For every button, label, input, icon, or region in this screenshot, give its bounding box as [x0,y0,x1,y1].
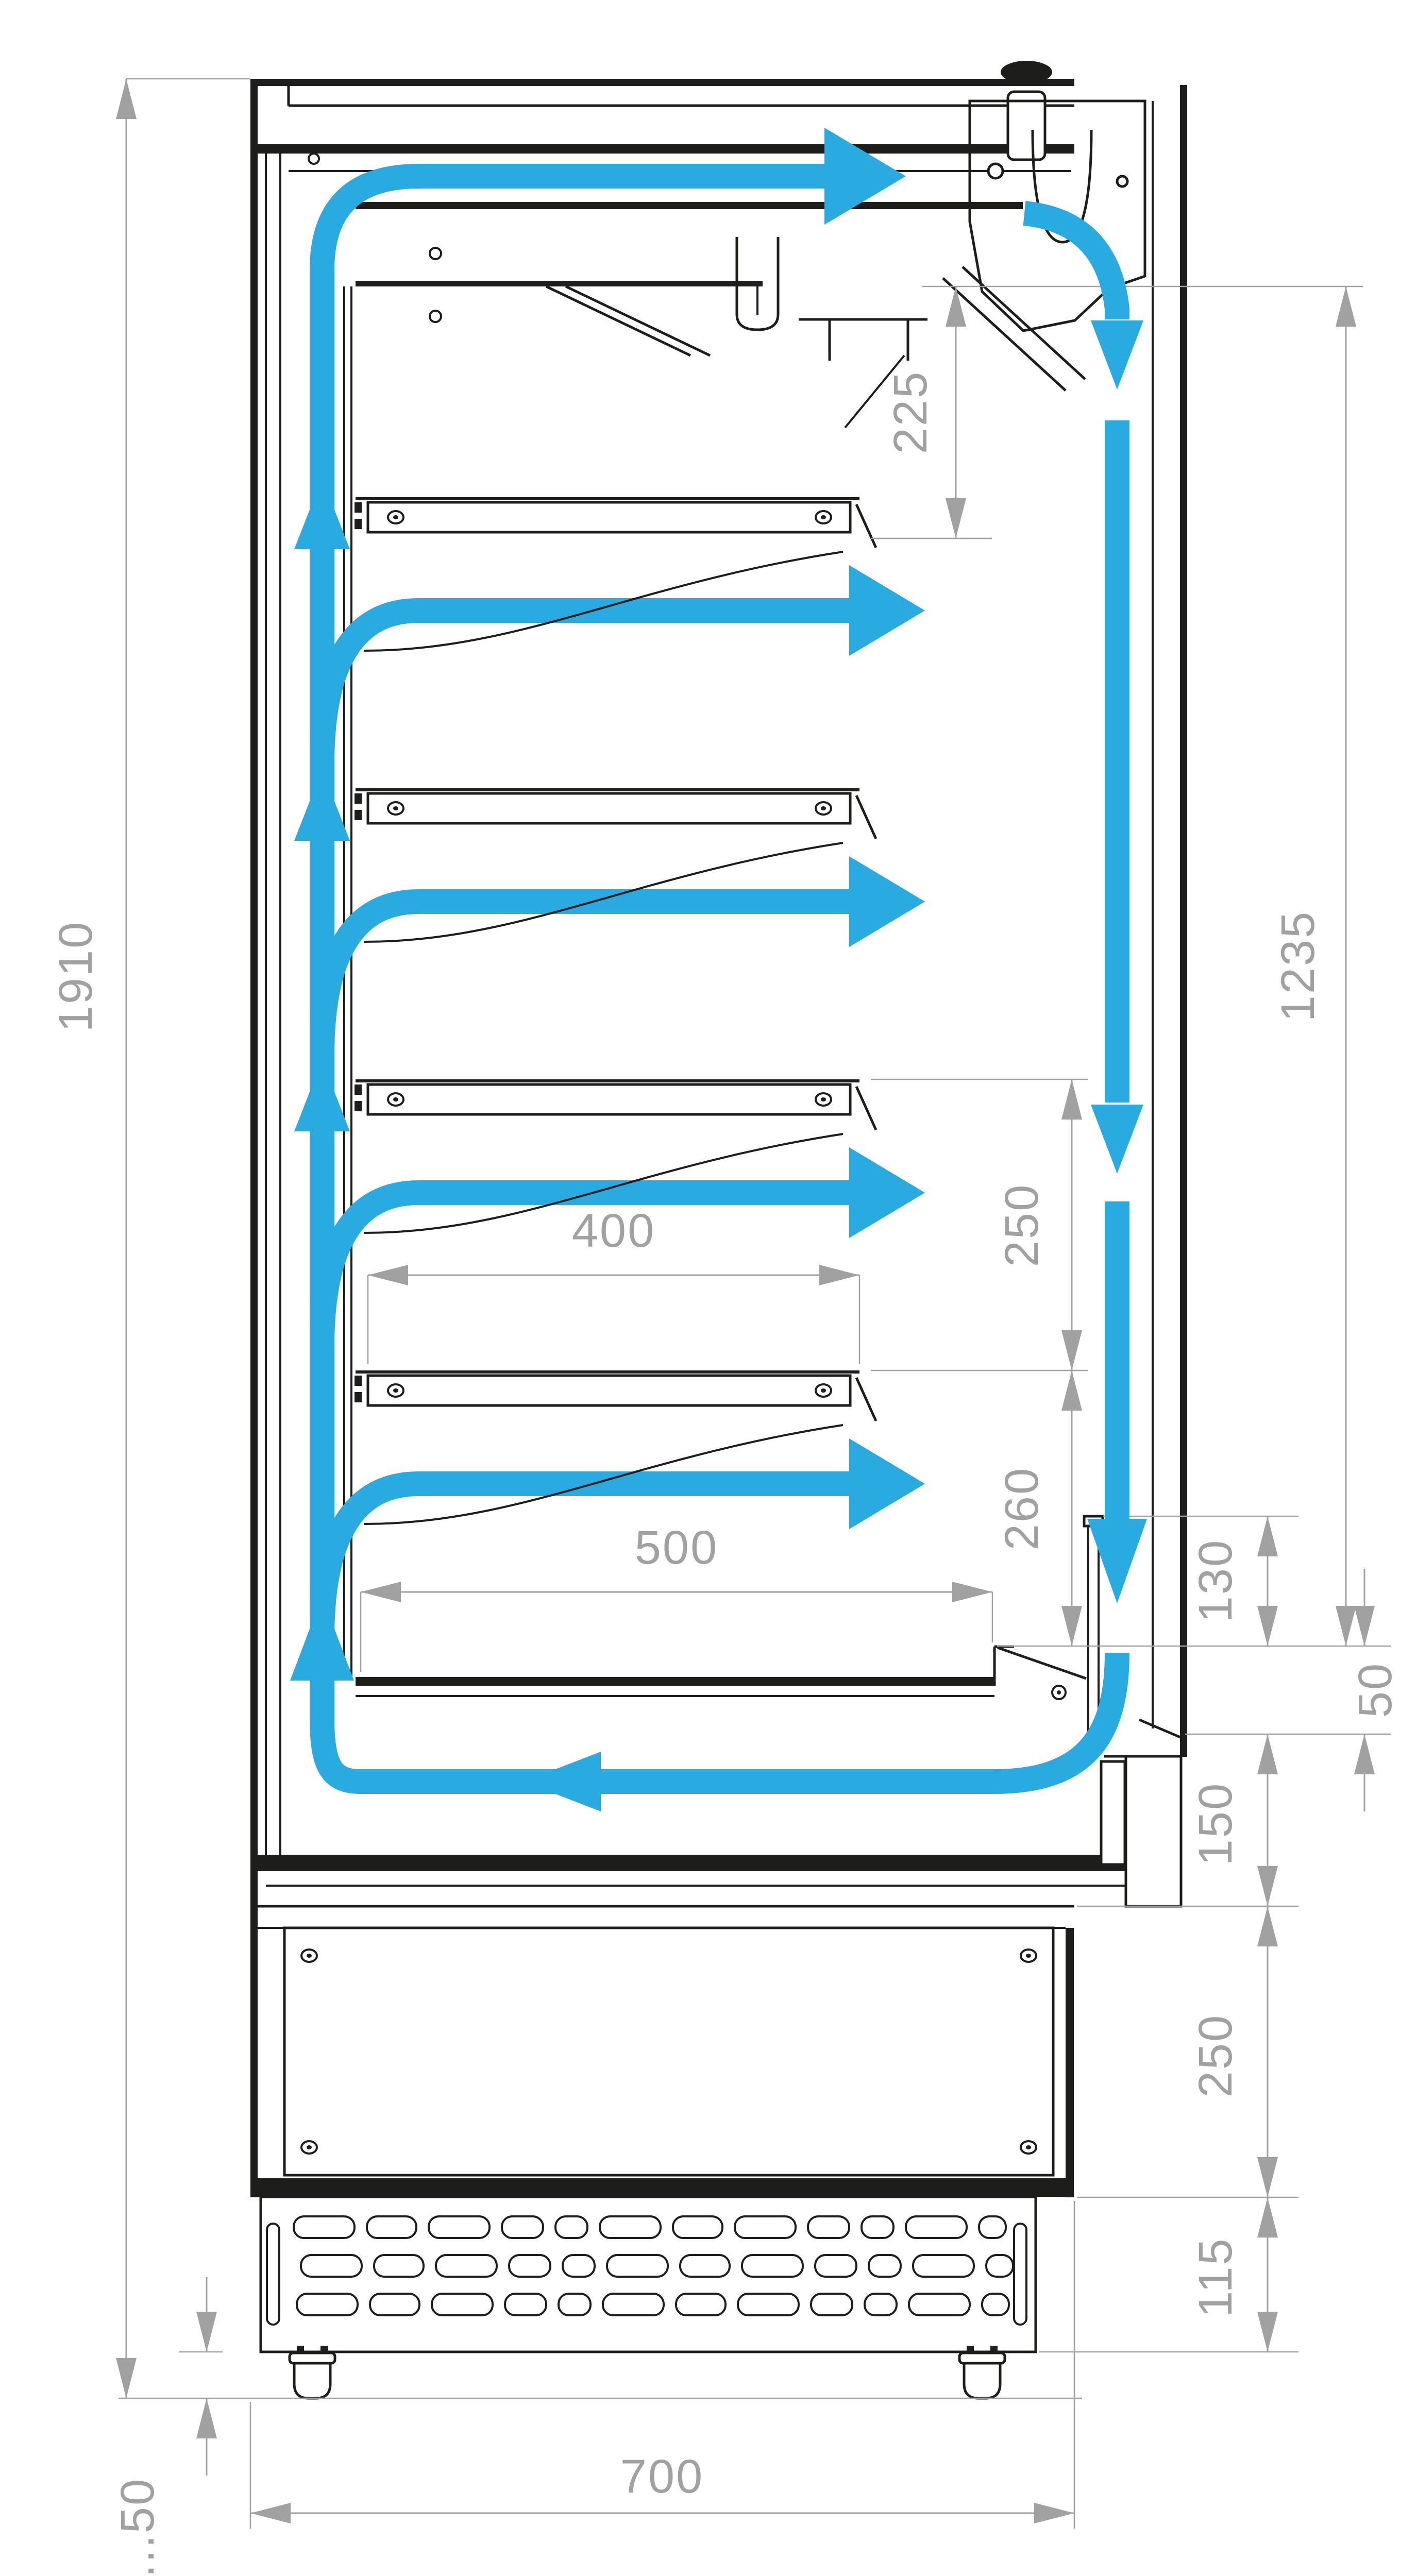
canopy-duct-roof [250,144,1074,154]
outlet-lip [943,278,1066,391]
dim-label-1235: 1235 [1272,910,1324,1022]
canopy-top-edge [250,79,1074,86]
front-outer-frame [1180,85,1187,1757]
canopy-duct-floor [356,202,1023,209]
adjustable-foot-right [959,2346,1005,2398]
machine-compartment [250,1906,1074,2197]
dim-air-curtain-drop: 1235 [1272,286,1356,1646]
dim-label-260: 260 [996,1467,1048,1551]
shelf-1 [355,497,876,548]
dim-label-250-shelf: 250 [996,1183,1048,1267]
cross-section-drawing: 1910 225 1235 250 [0,0,1417,2576]
dim-label-115: 115 [1189,2237,1242,2317]
adjustable-foot-left [290,2346,335,2398]
return-ramp [998,1648,1086,1679]
dim-label-50: 50 [1349,1662,1402,1718]
canopy-outlet-ceiling [356,281,763,286]
compartment-front-wall [1066,1928,1074,2197]
back-outer-wall [250,86,258,2197]
front-kick-panel [1126,1756,1181,1906]
dim-label-250-base: 250 [1189,2014,1242,2098]
dim-label-225: 225 [884,370,937,454]
dim-label-500: 500 [635,1521,719,1574]
dim-label-30-50: 30...50 [111,2478,164,2576]
ventilation-louver [261,2197,1036,2352]
arrow-down-curtain-icon [1091,320,1143,389]
shelf-2 [355,788,876,839]
dim-shelf-width: 400 [368,1205,859,1364]
canopy [250,79,1085,428]
dim-label-1910: 1910 [49,921,102,1032]
arrow-right-shelf-icon [322,1438,925,1638]
louver-slot-row [301,2255,1013,2277]
dim-label-130: 130 [1189,1539,1242,1623]
air-curtain-start [1024,213,1117,319]
frame-brace [1139,1720,1185,1739]
well-deck [356,1677,994,1686]
louver-handle-right [1014,2224,1026,2325]
shelf-4 [355,1370,876,1421]
dim-label-700: 700 [620,2450,704,2503]
arrow-right-shelf-icon [322,565,925,765]
dim-machine-compartment: 250 [1189,1906,1278,2197]
airflow [290,128,1147,1811]
louver-slot-row [294,2216,1006,2238]
arrow-down-curtain-icon [1087,1519,1147,1603]
dim-label-400: 400 [572,1205,656,1257]
dim-shelf-pitch-upper: 250 [871,1079,1088,1370]
air-deflector-vane [546,286,690,355]
arrow-right-shelf-icon [322,856,925,1056]
dim-feet-range: 30...50 [111,2277,223,2576]
front-rail [1101,1761,1125,1865]
drawing-page: 1910 225 1235 250 [0,0,1417,2576]
arrow-up-duct-icon [294,478,350,549]
louver-slot-row [297,2294,1009,2315]
airflow-return-base [322,1618,1117,1782]
dim-front-panel: 150 [1189,1734,1278,1906]
dim-well-width: 500 [361,1521,992,1672]
arrow-right-canopy-icon [824,128,906,225]
plinth-top-bar [250,2178,1074,2197]
compartment-panel [284,1928,1053,2175]
well-bottom-shell [258,1855,1128,1871]
dim-front-lip: 130 [1189,1516,1278,1646]
dim-plinth: 115 [1189,2197,1278,2352]
arrow-left-return-icon [524,1752,601,1811]
arrow-up-duct-icon [294,770,350,841]
dim-overall-height: 1910 [49,79,250,2398]
bottom-well [258,1516,1185,1906]
dim-shelf-pitch-lower: 260 [996,1370,1082,1646]
arrow-up-duct-icon [294,1060,350,1131]
shelf-3 [355,1079,876,1130]
arrow-down-curtain-icon [1091,1105,1143,1174]
dim-depth: 700 [250,2201,1074,2529]
dim-return-gap: 50 [1349,1569,1402,1811]
louver-handle-left [267,2224,279,2325]
dim-label-150: 150 [1189,1782,1242,1866]
